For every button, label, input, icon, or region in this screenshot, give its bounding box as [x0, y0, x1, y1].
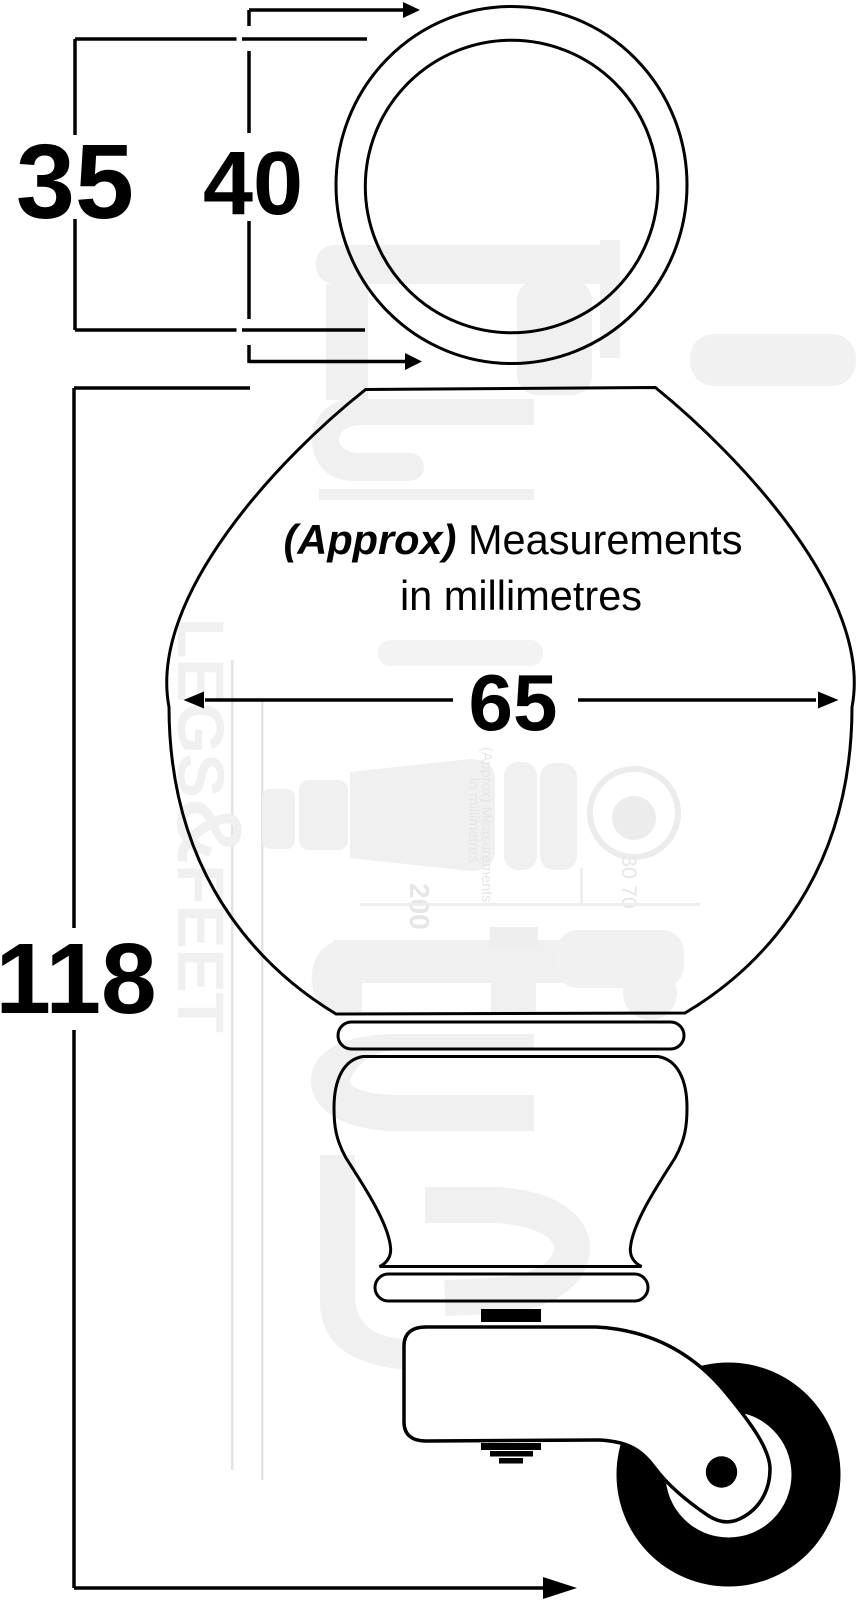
svg-text:in millimetres: in millimetres: [465, 778, 481, 863]
svg-text:35: 35: [16, 123, 134, 241]
svg-text:118: 118: [0, 923, 157, 1035]
svg-text:(Approx) Measurements: (Approx) Measurements: [284, 516, 743, 563]
svg-text:200: 200: [404, 883, 435, 930]
svg-text:65: 65: [469, 658, 558, 747]
svg-text:40: 40: [203, 134, 303, 234]
svg-text:30 70: 30 70: [617, 855, 641, 909]
svg-text:in millimetres: in millimetres: [400, 572, 642, 619]
